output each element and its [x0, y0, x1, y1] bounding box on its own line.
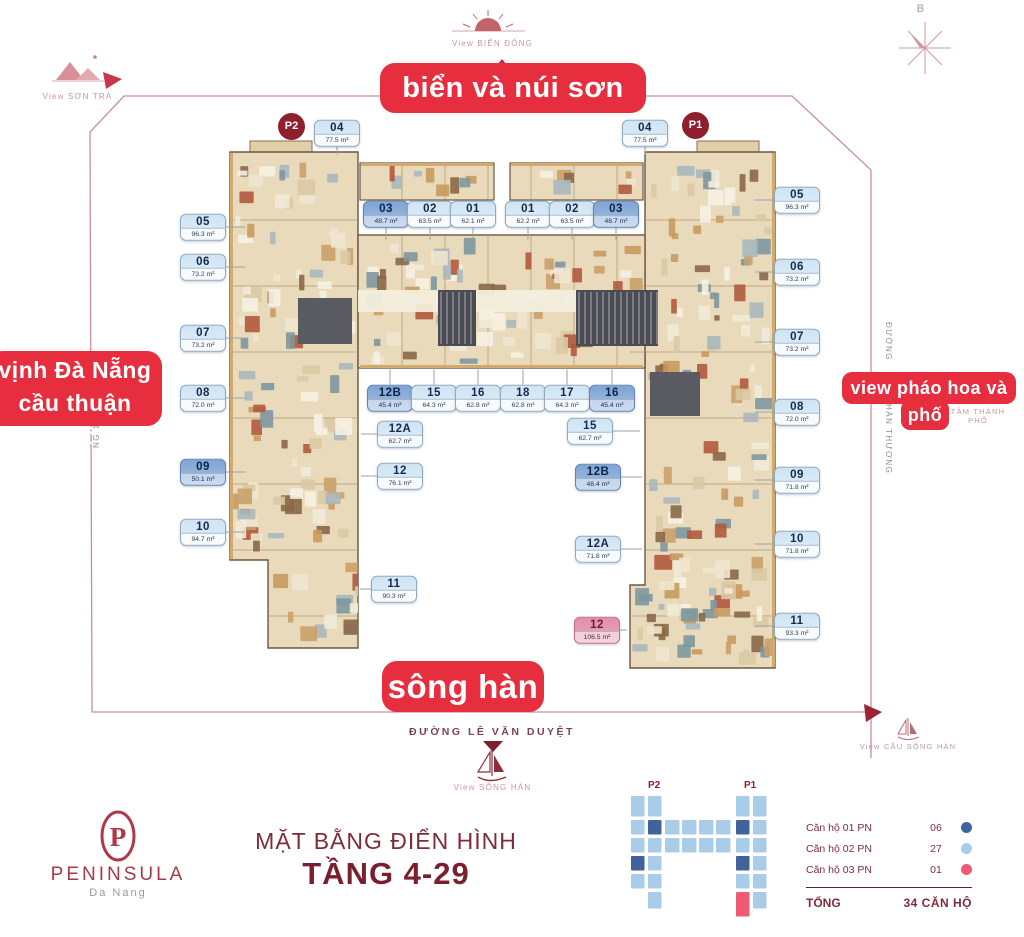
unit-number: 02: [408, 202, 452, 215]
unit-label-11: 1193.3 m²: [774, 613, 820, 640]
view-label-cau-song-han: View CẦU SÔNG HÀN: [858, 742, 958, 751]
unit-label-12: 12106.5 m²: [574, 617, 620, 644]
floorplan-poster: biển và núi sơn trà vịnh Đà Nẵng cầu thu…: [0, 0, 1024, 937]
brand-name: PENINSULA: [36, 864, 200, 886]
unit-number: 01: [506, 202, 550, 215]
legend-row-2pn: Căn hộ 02 PN 27: [806, 838, 972, 859]
sailboat-small-icon: [898, 718, 919, 740]
legend-total-value: 34 CĂN HỘ: [903, 896, 972, 910]
unit-number: 01: [451, 202, 495, 215]
unit-label-18: 1862.8 m²: [500, 385, 546, 412]
tower-badge-p1: P1: [682, 112, 709, 139]
unit-area: 64.3 m²: [412, 399, 456, 411]
legend-dot-1pn-icon: [961, 822, 972, 833]
unit-area: 45.4 m²: [368, 399, 412, 411]
mini-keyplan-label-p1: P1: [744, 780, 756, 791]
unit-label-10: 1094.7 m²: [180, 519, 226, 546]
unit-number: 15: [412, 386, 456, 399]
unit-number: 15: [568, 419, 612, 432]
unit-label-12b: 12B45.4 m²: [367, 385, 413, 412]
legend-dot-2pn-icon: [961, 843, 972, 854]
legend-total-row: TỔNG 34 CĂN HỘ: [806, 894, 972, 912]
north-label: B: [912, 3, 930, 15]
unit-label-07: 0773.2 m²: [774, 329, 820, 356]
unit-label-03: 0348.7 m²: [593, 201, 639, 228]
unit-area: 64.3 m²: [545, 399, 589, 411]
unit-label-02: 0263.5 m²: [549, 201, 595, 228]
unit-area: 90.3 m²: [372, 590, 416, 602]
mountain-icon: [52, 55, 104, 81]
unit-label-17: 1764.3 m²: [544, 385, 590, 412]
unit-area: 62.2 m²: [506, 215, 550, 227]
mini-keyplan: [631, 796, 767, 917]
sun-icon: [452, 10, 525, 31]
unit-area: 71.8 m²: [775, 545, 819, 557]
view-label-son-tra: View SƠN TRÀ: [40, 92, 115, 101]
unit-number: 12: [575, 618, 619, 631]
view-label-song-han: View SÔNG HÀN: [450, 783, 535, 792]
unit-area: 72.0 m²: [775, 413, 819, 425]
unit-area: 77.5 m²: [315, 134, 359, 146]
unit-number: 10: [775, 532, 819, 545]
banner-sea-mountain: biển và núi sơn trà: [380, 63, 646, 113]
unit-number: 11: [372, 577, 416, 590]
unit-number: 12B: [576, 465, 620, 478]
unit-area: 96.3 m²: [181, 228, 225, 240]
legend-row-3pn: Căn hộ 03 PN 01: [806, 859, 972, 880]
brand-subtitle: Da Nang: [36, 887, 200, 899]
unit-label-04: 0477.5 m²: [314, 120, 360, 147]
unit-label-15: 1564.3 m²: [411, 385, 457, 412]
unit-number: 16: [456, 386, 500, 399]
unit-area: 94.7 m²: [181, 533, 225, 545]
unit-area: 48.7 m²: [594, 215, 638, 227]
unit-number: 09: [775, 468, 819, 481]
unit-area: 50.1 m²: [181, 473, 225, 485]
unit-number: 07: [775, 330, 819, 343]
unit-label-16: 1645.4 m²: [589, 385, 635, 412]
unit-label-06: 0673.2 m²: [774, 259, 820, 286]
unit-label-03: 0348.7 m²: [363, 201, 409, 228]
unit-area: 73.2 m²: [775, 343, 819, 355]
unit-area: 72.0 m²: [181, 399, 225, 411]
unit-area: 76.1 m²: [378, 477, 422, 489]
unit-area: 62.7 m²: [568, 432, 612, 444]
unit-area: 106.5 m²: [575, 631, 619, 643]
legend-row-1pn: Căn hộ 01 PN 06: [806, 817, 972, 838]
unit-label-09: 0950.1 m²: [180, 459, 226, 486]
legend-label: Căn hộ 02 PN: [806, 843, 919, 855]
unit-area: 63.5 m²: [408, 215, 452, 227]
legend: Căn hộ 01 PN 06 Căn hộ 02 PN 27 Căn hộ 0…: [806, 817, 972, 912]
legend-divider: [806, 887, 972, 888]
tower-badge-p2: P2: [278, 113, 305, 140]
unit-label-12: 1276.1 m²: [377, 463, 423, 490]
sailboat-icon: [478, 750, 506, 781]
street-label-left: NG 1: [92, 423, 101, 448]
unit-number: 10: [181, 520, 225, 533]
unit-label-04: 0477.5 m²: [622, 120, 668, 147]
legend-count: 06: [919, 822, 953, 834]
unit-number: 17: [545, 386, 589, 399]
compass-north-icon: [899, 22, 951, 74]
unit-label-15: 1562.7 m²: [567, 418, 613, 445]
unit-area: 96.3 m²: [775, 201, 819, 213]
street-marker-bottom: [483, 741, 503, 752]
unit-number: 02: [550, 202, 594, 215]
view-label-bien-dong: View BIỂN ĐÔNG: [450, 39, 535, 48]
banner-han-river: sông hàn: [382, 661, 544, 712]
unit-number: 07: [181, 326, 225, 339]
unit-label-11: 1190.3 m²: [371, 576, 417, 603]
svg-text:P: P: [110, 822, 127, 852]
label-city-center: TÂM THÀNH PHỐ: [942, 407, 1014, 425]
unit-label-05: 0596.3 m²: [774, 187, 820, 214]
legend-total-label: TỔNG: [806, 896, 903, 910]
plan-floors: TẦNG 4-29: [254, 856, 518, 892]
unit-number: 12: [378, 464, 422, 477]
unit-label-12b: 12B48.4 m²: [575, 464, 621, 491]
unit-number: 03: [364, 202, 408, 215]
unit-number: 08: [181, 386, 225, 399]
unit-label-12a: 12A62.7 m²: [377, 421, 423, 448]
unit-label-10: 1071.8 m²: [774, 531, 820, 558]
unit-area: 48.4 m²: [576, 478, 620, 490]
legend-label: Căn hộ 01 PN: [806, 822, 919, 834]
unit-number: 16: [590, 386, 634, 399]
unit-label-16: 1662.8 m²: [455, 385, 501, 412]
unit-area: 62.8 m²: [456, 399, 500, 411]
legend-count: 27: [919, 843, 953, 855]
unit-area: 93.3 m²: [775, 627, 819, 639]
unit-area: 62.7 m²: [378, 435, 422, 447]
unit-number: 09: [181, 460, 225, 473]
street-label-right-upper: ĐƯỜNG: [884, 322, 893, 361]
unit-number: 18: [501, 386, 545, 399]
unit-label-01: 0162.1 m²: [450, 201, 496, 228]
unit-label-08: 0872.0 m²: [180, 385, 226, 412]
legend-label: Căn hộ 03 PN: [806, 864, 919, 876]
unit-number: 12A: [576, 537, 620, 550]
unit-number: 08: [775, 400, 819, 413]
unit-label-08: 0872.0 m²: [774, 399, 820, 426]
unit-area: 73.2 m²: [775, 273, 819, 285]
unit-label-02: 0263.5 m²: [407, 201, 453, 228]
corner-marker-top-left: [103, 72, 122, 89]
unit-number: 04: [315, 121, 359, 134]
unit-label-09: 0971.8 m²: [774, 467, 820, 494]
unit-area: 45.4 m²: [590, 399, 634, 411]
unit-area: 62.1 m²: [451, 215, 495, 227]
unit-number: 12B: [368, 386, 412, 399]
unit-label-01: 0162.2 m²: [505, 201, 551, 228]
unit-area: 71.8 m²: [576, 550, 620, 562]
unit-area: 73.2 m²: [181, 268, 225, 280]
unit-area: 48.7 m²: [364, 215, 408, 227]
brand-logo-monogram: P: [83, 806, 153, 866]
street-label-le-van-duyet: ĐƯỜNG LÊ VĂN DUYỆT: [397, 726, 587, 738]
unit-area: 73.2 m²: [181, 339, 225, 351]
unit-area: 77.5 m²: [623, 134, 667, 146]
unit-number: 04: [623, 121, 667, 134]
mini-keyplan-label-p2: P2: [648, 780, 660, 791]
unit-label-05: 0596.3 m²: [180, 214, 226, 241]
unit-label-06: 0673.2 m²: [180, 254, 226, 281]
plan-title: MẶT BẰNG ĐIỂN HÌNH: [254, 828, 518, 855]
unit-area: 71.8 m²: [775, 481, 819, 493]
unit-label-12a: 12A71.8 m²: [575, 536, 621, 563]
unit-number: 11: [775, 614, 819, 627]
unit-number: 05: [775, 188, 819, 201]
unit-area: 63.5 m²: [550, 215, 594, 227]
unit-area: 62.8 m²: [501, 399, 545, 411]
unit-number: 06: [775, 260, 819, 273]
banner-bay-bridge: vịnh Đà Nẵng cầu thuận phước: [0, 351, 162, 426]
corner-marker-bottom-right: [864, 704, 882, 722]
unit-label-07: 0773.2 m²: [180, 325, 226, 352]
unit-number: 05: [181, 215, 225, 228]
legend-dot-3pn-icon: [961, 864, 972, 875]
legend-count: 01: [919, 864, 953, 876]
unit-number: 12A: [378, 422, 422, 435]
unit-number: 03: [594, 202, 638, 215]
street-label-right-lower: HÀN THƯƠNG: [884, 404, 893, 474]
unit-number: 06: [181, 255, 225, 268]
